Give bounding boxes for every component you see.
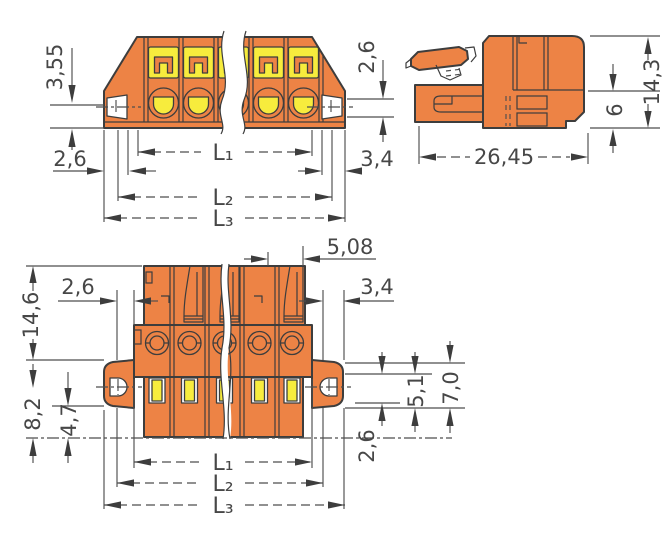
dim-label-2-6-right: 2,6 (355, 429, 379, 462)
dim-label-L3: L₃ (212, 207, 233, 232)
dim-label-3-4: 3,4 (360, 147, 393, 171)
side-body (483, 36, 584, 128)
dim-label-8-2: 8,2 (21, 397, 45, 430)
dim-label-7-0: 7,0 (439, 371, 463, 404)
front-view-bottom: 5,08 2,6 3,4 14,6 (19, 235, 465, 519)
dim-label-14-3: 14,3 (640, 59, 664, 106)
dim-label-4-7: 4,7 (57, 403, 81, 436)
dim-label-L3: L₃ (212, 494, 233, 519)
connector-dimension-drawing: 3,55 2,6 2,6 3,4 (0, 0, 671, 536)
dim-label-6: 6 (603, 103, 627, 116)
dim-label-L1: L₁ (212, 141, 233, 166)
dim-label-3-4: 3,4 (360, 275, 393, 299)
side-view: 14,3 6 26,45 (406, 36, 664, 169)
dim-label-5-08: 5,08 (327, 235, 374, 259)
front-view-top: 3,55 2,6 2,6 3,4 (43, 31, 394, 232)
dim-label-5-1: 5,1 (404, 374, 428, 407)
locking-lever (411, 47, 468, 70)
dim-label-26-45: 26,45 (474, 145, 534, 169)
dim-label-2-6-right: 2,6 (355, 40, 379, 73)
dim-label-3-55: 3,55 (43, 44, 67, 91)
dim-label-2-6-left: 2,6 (53, 147, 86, 171)
dim-label-2-6-top-left: 2,6 (61, 275, 94, 299)
dim-label-14-6: 14,6 (19, 292, 43, 339)
technical-drawing-page: 3,55 2,6 2,6 3,4 (0, 0, 671, 536)
